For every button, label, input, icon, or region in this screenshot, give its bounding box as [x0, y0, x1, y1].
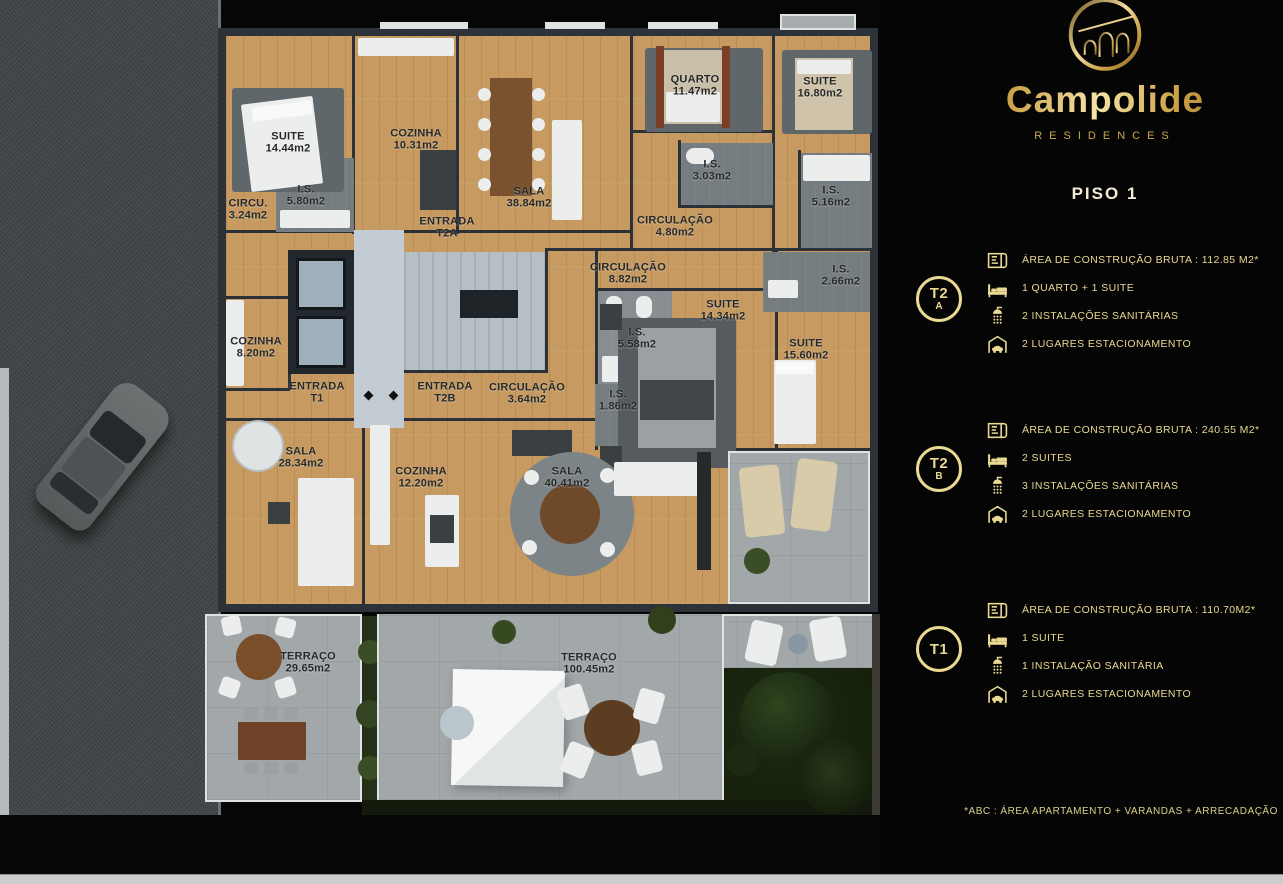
bed-icon: [985, 278, 1009, 299]
room-label: COZINHA10.31m2: [390, 128, 442, 153]
chair: [600, 468, 615, 483]
terrace-left: [205, 614, 362, 802]
chair: [600, 542, 615, 557]
bathtub: [280, 210, 350, 228]
room-label: I.S.5.58m2: [618, 327, 657, 352]
round-side-table: [788, 634, 808, 654]
floor-plan-sheet: SUITE14.44m2 COZINHA10.31m2 SALA38.84m2 …: [0, 0, 1283, 884]
room-label: SUITE14.44m2: [266, 131, 311, 156]
round-table: [236, 634, 282, 680]
sofa: [552, 120, 582, 220]
chair: [244, 762, 258, 774]
unit-block-t1: T1 ÁREA DE CONSTRUÇÃO BRUTA : 110.70M2* …: [908, 596, 1273, 708]
spec-row-bathrooms: 1 INSTALAÇÃO SANITÁRIA: [985, 652, 1273, 680]
garage-icon: [985, 504, 1009, 525]
washbasin: [768, 280, 798, 298]
room-label: SUITE16.80m2: [798, 76, 843, 101]
unit-badge-t2a: T2 A: [916, 276, 962, 322]
room-label: SALA40.41m2: [545, 466, 590, 491]
chair: [524, 470, 539, 485]
kitchen-counter: [358, 38, 454, 56]
brand-name: Campolide: [925, 79, 1283, 121]
car-body: [30, 376, 176, 536]
room-label: I.S.1.86m2: [599, 389, 638, 414]
room-label: TERRAÇO29.65m2: [280, 651, 336, 676]
chair: [264, 708, 278, 720]
plant: [744, 548, 770, 574]
sofa: [298, 478, 354, 586]
brand-block: Campolide RESIDENCES PISO 1: [925, 0, 1283, 204]
bed-icon: [985, 628, 1009, 649]
sofa: [614, 462, 698, 496]
garden-edge: [872, 614, 880, 815]
elevator-2: [296, 316, 346, 368]
garage-icon: [985, 684, 1009, 705]
window-top-2: [545, 22, 605, 29]
spec-row-parking: 2 LUGARES ESTACIONAMENTO: [985, 500, 1273, 528]
room-label: QUARTO11.47m2: [671, 74, 720, 99]
spec-row-bedrooms: 1 QUARTO + 1 SUITE: [985, 274, 1273, 302]
round-table: [232, 420, 284, 472]
room-label: SUITE15.60m2: [784, 338, 829, 363]
palm-tree: [796, 736, 874, 814]
floor-title: PISO 1: [925, 184, 1283, 204]
chair: [284, 708, 298, 720]
spec-row-bathrooms: 3 INSTALAÇÕES SANITÁRIAS: [985, 472, 1273, 500]
bed-icon: [985, 448, 1009, 469]
plant: [648, 606, 676, 634]
chair: [220, 614, 243, 637]
footnote: *ABC : ÁREA APARTAMENTO + VARANDAS + ARR…: [956, 806, 1283, 817]
chair: [478, 148, 491, 161]
stair-landing: [460, 290, 518, 318]
sidewalk-curb: [0, 368, 9, 815]
room-label: SALA38.84m2: [507, 186, 552, 211]
spec-row-parking: 2 LUGARES ESTACIONAMENTO: [985, 680, 1273, 708]
bed-frame: [656, 46, 664, 128]
room-label: I.S.5.80m2: [287, 184, 326, 209]
bed-frame: [722, 46, 730, 128]
dining-table: [238, 722, 306, 760]
info-panel: Campolide RESIDENCES PISO 1 T2 A ÁREA DE…: [880, 0, 1283, 884]
brand-subtitle: RESIDENCES: [925, 130, 1283, 142]
room-label: COZINHA12.20m2: [395, 466, 447, 491]
spec-row-bathrooms: 2 INSTALAÇÕES SANITÁRIAS: [985, 302, 1273, 330]
shower-icon: [985, 476, 1009, 497]
room-label: CIRCU.3.24m2: [228, 198, 267, 223]
sun-lounger: [790, 458, 838, 532]
round-side-table: [440, 706, 474, 740]
pillows: [776, 362, 814, 374]
spec-row-area: ÁREA DE CONSTRUÇÃO BRUTA : 112.85 M2*: [985, 246, 1273, 274]
room-label: CIRCULAÇÃO3.64m2: [489, 382, 565, 407]
floor-plan-icon: [985, 420, 1009, 441]
chair: [522, 540, 537, 555]
window-top-3: [648, 22, 718, 29]
wall: [362, 420, 365, 604]
room-label: ENTRADAT1: [289, 381, 344, 406]
room-label: SALA28.34m2: [279, 446, 324, 471]
spec-row-parking: 2 LUGARES ESTACIONAMENTO: [985, 330, 1273, 358]
toilet: [636, 296, 652, 318]
aqueduct-logo-icon: [1065, 0, 1145, 75]
wall: [402, 370, 548, 373]
room-label: I.S.3.03m2: [693, 159, 732, 184]
elevator-1: [296, 258, 346, 310]
balcony-top-right: [780, 14, 856, 30]
shower-icon: [985, 656, 1009, 677]
kitchen-counter: [370, 425, 390, 545]
unit-badge-t1: T1: [916, 626, 962, 672]
sun-lounger: [738, 464, 785, 538]
bathtub: [803, 155, 870, 181]
wall: [630, 36, 633, 250]
car-top-view: [28, 378, 183, 538]
entrance-lobby: [354, 230, 404, 428]
cooktop: [430, 515, 454, 543]
wall: [545, 248, 870, 251]
wall: [226, 418, 598, 421]
wall: [545, 250, 548, 372]
chair: [478, 88, 491, 101]
shower-icon: [985, 306, 1009, 327]
chair: [478, 178, 491, 191]
wall: [456, 36, 459, 234]
garage-icon: [985, 334, 1009, 355]
wall: [226, 296, 290, 299]
room-label: CIRCULAÇÃO4.80m2: [637, 215, 713, 240]
unit-block-t2b: T2 B ÁREA DE CONSTRUÇÃO BRUTA : 240.55 M…: [908, 416, 1273, 528]
room-label: ENTRADAT2B: [417, 381, 472, 406]
chair: [264, 762, 278, 774]
window-bottom-edge: [0, 874, 1283, 884]
room-label: ENTRADAT2A: [419, 216, 474, 241]
spec-row-bedrooms: 1 SUITE: [985, 624, 1273, 652]
bed-throw: [640, 380, 714, 420]
chair: [284, 762, 298, 774]
room-label: COZINHA8.20m2: [230, 336, 282, 361]
room-label: I.S.5.16m2: [812, 185, 851, 210]
floor-plan-icon: [985, 600, 1009, 621]
room-label: I.S.2.66m2: [822, 264, 861, 289]
window-top-1: [380, 22, 468, 29]
plant: [492, 620, 516, 644]
spec-row-area: ÁREA DE CONSTRUÇÃO BRUTA : 110.70M2*: [985, 596, 1273, 624]
kitchen-appliance: [420, 150, 456, 210]
chair: [532, 88, 545, 101]
wall: [678, 205, 775, 208]
floor-plan-icon: [985, 250, 1009, 271]
spec-row-area: ÁREA DE CONSTRUÇÃO BRUTA : 240.55 M2*: [985, 416, 1273, 444]
room-label: SUITE14.34m2: [701, 299, 746, 324]
bush: [726, 744, 758, 776]
chair: [244, 708, 258, 720]
spec-row-bedrooms: 2 SUITES: [985, 444, 1273, 472]
unit-badge-t2b: T2 B: [916, 446, 962, 492]
chair: [532, 148, 545, 161]
chair: [532, 118, 545, 131]
pillows: [797, 60, 851, 74]
round-table: [540, 484, 600, 544]
chair: [478, 118, 491, 131]
coffee-table: [268, 502, 290, 524]
wall: [226, 388, 290, 391]
room-label: CIRCULAÇÃO8.82m2: [590, 262, 666, 287]
tv-cabinet: [697, 452, 711, 570]
room-label: TERRAÇO100.45m2: [561, 652, 617, 677]
unit-block-t2a: T2 A ÁREA DE CONSTRUÇÃO BRUTA : 112.85 M…: [908, 246, 1273, 358]
garden-strip: [362, 800, 880, 815]
dining-table: [490, 78, 532, 196]
